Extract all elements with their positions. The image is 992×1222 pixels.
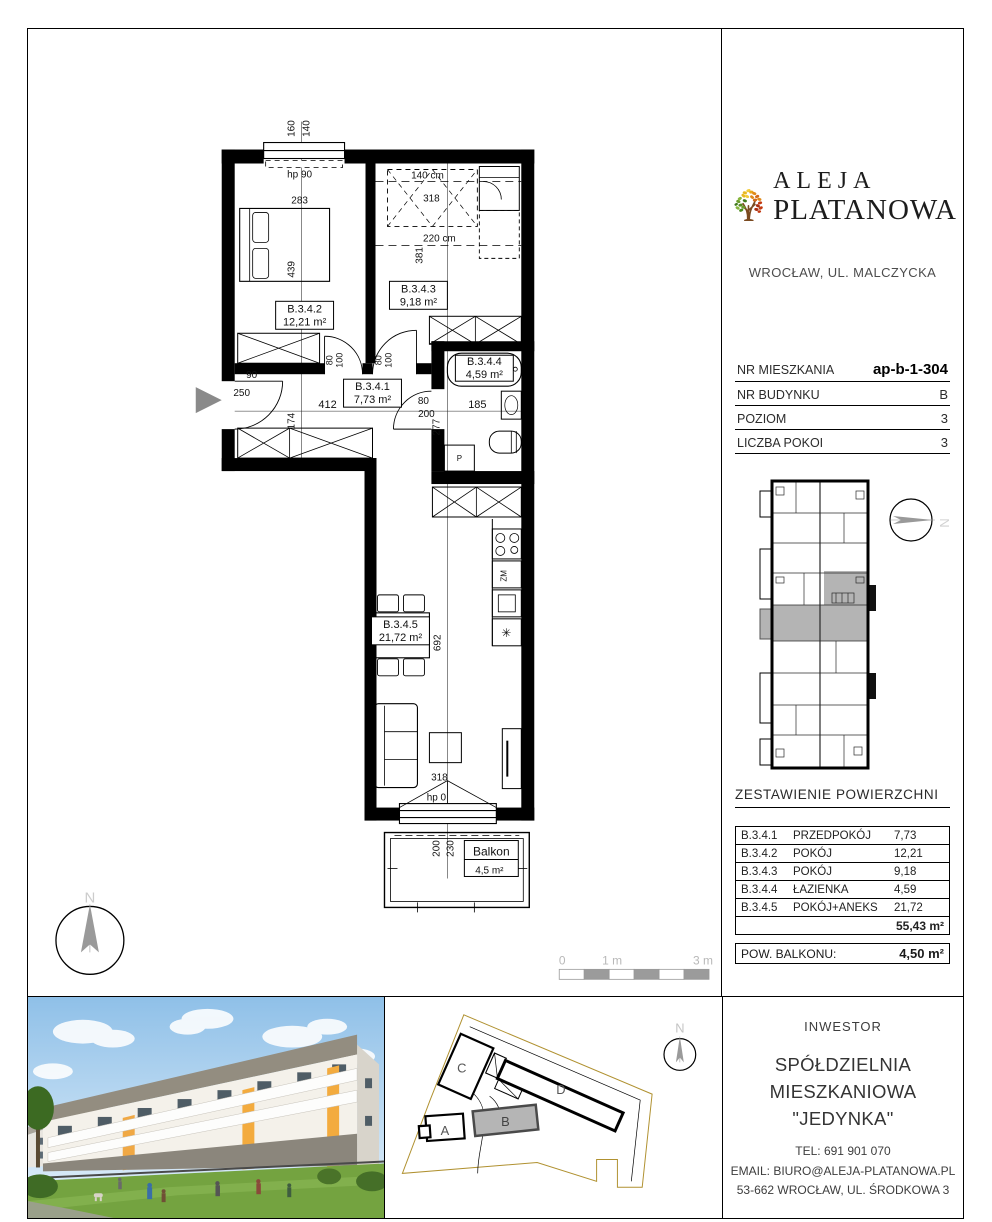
- detail-label: POZIOM: [737, 412, 786, 426]
- area-row: B.3.4.2 POKÓJ 12,21: [736, 845, 949, 863]
- investor-address: 53-662 WROCŁAW, UL. ŚRODKOWA 3: [723, 1181, 963, 1200]
- room-area: 9,18: [894, 866, 944, 878]
- balcony-area-box: POW. BALKONU: 4,50 m²: [735, 943, 950, 964]
- svg-text:80: 80: [373, 355, 383, 365]
- svg-text:12,21 m²: 12,21 m²: [283, 316, 327, 328]
- area-row: B.3.4.4 ŁAZIENKA 4,59: [736, 881, 949, 899]
- svg-text:250: 250: [233, 388, 250, 399]
- wardrobe: [238, 428, 373, 458]
- svg-text:4,5 m²: 4,5 m²: [475, 865, 504, 876]
- svg-text:439: 439: [287, 261, 298, 278]
- svg-text:160: 160: [287, 120, 298, 137]
- svg-text:692: 692: [432, 634, 443, 651]
- svg-text:P: P: [457, 454, 462, 463]
- detail-value: 3: [941, 411, 948, 426]
- hall-furniture: [238, 428, 373, 458]
- dishwasher: [492, 590, 521, 617]
- floorplan-sheet: { "plan": { "labels": [ {"t":"160","x":2…: [0, 0, 992, 1222]
- investor-name-line2: MIESZKANIOWA "JEDYNKA": [723, 1079, 963, 1133]
- svg-text:N: N: [85, 889, 96, 906]
- detail-row-level: POZIOM 3: [735, 406, 950, 430]
- total-area-row: 55,43 m²: [736, 917, 949, 935]
- svg-text:✳: ✳: [501, 626, 511, 640]
- svg-text:B.3.4.3: B.3.4.3: [401, 283, 436, 295]
- room-area: 12,21: [894, 848, 944, 860]
- svg-text:B.3.4.4: B.3.4.4: [467, 356, 502, 368]
- investor-info: INWESTOR SPÓŁDZIELNIA MIESZKANIOWA "JEDY…: [722, 997, 963, 1218]
- svg-text:174: 174: [287, 412, 298, 429]
- balcony-area-label: POW. BALKONU:: [741, 947, 836, 961]
- svg-text:9,18 m²: 9,18 m²: [400, 296, 438, 308]
- investor-phone: TEL: 691 901 070: [723, 1142, 963, 1161]
- minimap-compass: N: [883, 487, 953, 553]
- tv-cabinet: [502, 729, 521, 789]
- chair: [377, 595, 398, 612]
- investor-contact: TEL: 691 901 070 EMAIL: BIURO@ALEJA-PLAT…: [723, 1142, 963, 1200]
- chair: [377, 659, 398, 676]
- footer-strip: CABDN INWESTOR SPÓŁDZIELNIA MIESZKANIOWA…: [28, 996, 963, 1218]
- total-area-value: 55,43 m²: [896, 919, 944, 933]
- svg-text:N: N: [675, 1021, 684, 1036]
- svg-text:1 m: 1 m: [602, 953, 622, 967]
- svg-text:B: B: [501, 1114, 510, 1129]
- room-name: PRZEDPOKÓJ: [793, 830, 894, 842]
- building-render-illustration: [28, 997, 384, 1218]
- balcony-door: [399, 804, 496, 824]
- entrance-arrow: [196, 387, 222, 413]
- closet: [479, 166, 519, 210]
- svg-text:21,72 m²: 21,72 m²: [379, 632, 423, 644]
- detail-label: LICZBA POKOI: [737, 436, 823, 450]
- area-row: B.3.4.3 POKÓJ 9,18: [736, 863, 949, 881]
- plot-boundary: [402, 1015, 652, 1187]
- site-plan-drawing: CABDN: [385, 997, 722, 1218]
- room-code: B.3.4.1: [741, 830, 793, 842]
- room-area: 21,72: [894, 902, 944, 914]
- svg-text:185: 185: [468, 399, 486, 411]
- svg-text:B.3.4.5: B.3.4.5: [383, 619, 418, 631]
- svg-text:80: 80: [418, 396, 430, 407]
- investor-email: EMAIL: BIURO@ALEJA-PLATANOWA.PL: [723, 1162, 963, 1181]
- svg-text:220 cm: 220 cm: [423, 233, 456, 244]
- svg-text:4,59 m²: 4,59 m²: [466, 369, 504, 381]
- room-area: 4,59: [894, 884, 944, 896]
- svg-text:hp 90: hp 90: [287, 169, 312, 180]
- tree-logo-icon: [734, 155, 765, 253]
- svg-text:412: 412: [318, 399, 336, 411]
- room-code: B.3.4.5: [741, 902, 793, 914]
- svg-text:200: 200: [431, 840, 442, 857]
- svg-text:283: 283: [291, 195, 308, 206]
- svg-text:hp 0: hp 0: [427, 793, 447, 804]
- floorplan-area: 160140hp 90283439B.3.4.212,21 m²140 cm31…: [28, 29, 722, 996]
- room-code: B.3.4.2: [741, 848, 793, 860]
- svg-text:D: D: [556, 1082, 565, 1097]
- svg-text:C: C: [457, 1060, 466, 1075]
- svg-text:80: 80: [325, 355, 335, 365]
- project-location: WROCŁAW, UL. MALCZYCKA: [722, 265, 963, 280]
- detail-label: NR MIESZKANIA: [737, 363, 834, 377]
- chair: [403, 659, 424, 676]
- svg-text:277: 277: [431, 418, 442, 435]
- svg-text:100: 100: [383, 353, 393, 368]
- room-code: B.3.4.4: [741, 884, 793, 896]
- bedroom-furniture: [238, 208, 330, 363]
- areas-table-title: ZESTAWIENIE POWIERZCHNI: [735, 787, 950, 808]
- detail-row-room-count: LICZBA POKOI 3: [735, 430, 950, 454]
- svg-text:B.3.4.2: B.3.4.2: [287, 303, 322, 315]
- bed: [240, 208, 330, 281]
- svg-text:200: 200: [418, 409, 435, 420]
- svg-text:ZM: ZM: [499, 570, 508, 582]
- brand-name-line1: ALEJA: [773, 169, 957, 195]
- investor-name-line1: SPÓŁDZIELNIA: [723, 1052, 963, 1079]
- scale-bar: [559, 969, 709, 979]
- building-render-photo: [28, 997, 385, 1218]
- brand-name: ALEJA PLATANOWA: [773, 169, 957, 226]
- siteplan-compass: [664, 1037, 696, 1071]
- svg-text:318: 318: [423, 193, 440, 204]
- room-area: 7,73: [894, 830, 944, 842]
- plan-labels: 160140hp 90283439B.3.4.212,21 m²140 cm31…: [85, 120, 714, 968]
- brand-logo: ALEJA PLATANOWA: [734, 155, 957, 253]
- detail-value: ap-b-1-304: [873, 361, 948, 378]
- svg-text:B.3.4.1: B.3.4.1: [355, 381, 390, 393]
- svg-text:7,73 m²: 7,73 m²: [354, 394, 392, 406]
- investor-heading: INWESTOR: [723, 1019, 963, 1034]
- svg-text:230: 230: [445, 840, 456, 857]
- building-minimap: [746, 477, 896, 772]
- cabinet: [432, 487, 521, 517]
- detail-row-building-number: NR BUDYNKU B: [735, 382, 950, 406]
- svg-text:381: 381: [414, 247, 425, 264]
- balcony-area-value: 4,50 m²: [899, 946, 944, 961]
- room-name: POKÓJ: [793, 848, 894, 860]
- svg-text:90: 90: [246, 370, 258, 381]
- apartment-floorplan-drawing: 160140hp 90283439B.3.4.212,21 m²140 cm31…: [28, 29, 721, 996]
- svg-text:318: 318: [431, 773, 448, 784]
- svg-text:Balkon: Balkon: [473, 845, 510, 859]
- building-floor-overview: N: [746, 477, 957, 777]
- room-name: POKÓJ: [793, 866, 894, 878]
- area-row: B.3.4.1 PRZEDPOKÓJ 7,73: [736, 827, 949, 845]
- detail-label: NR BUDYNKU: [737, 388, 820, 402]
- svg-text:100: 100: [335, 353, 345, 368]
- sofa: [375, 704, 418, 788]
- brand-name-line2: PLATANOWA: [773, 195, 957, 226]
- room3-furniture: [375, 166, 521, 344]
- svg-text:A: A: [441, 1123, 450, 1138]
- room-name: ŁAZIENKA: [793, 884, 894, 896]
- detail-value: B: [939, 387, 948, 402]
- stove: [492, 529, 521, 559]
- coffee-table: [429, 733, 461, 763]
- svg-text:0: 0: [559, 953, 566, 967]
- area-row: B.3.4.5 POKÓJ+ANEKS 21,72: [736, 899, 949, 917]
- apartment-details: NR MIESZKANIA ap-b-1-304 NR BUDYNKU B PO…: [735, 356, 950, 454]
- svg-text:140: 140: [302, 120, 313, 137]
- svg-text:N: N: [937, 518, 952, 527]
- svg-text:3 m: 3 m: [693, 953, 713, 967]
- sidebar: ALEJA PLATANOWA WROCŁAW, UL. MALCZYCKA N…: [722, 29, 963, 996]
- site-plan: CABDN: [385, 997, 722, 1218]
- north-compass: [56, 904, 124, 974]
- detail-value: 3: [941, 435, 948, 450]
- chair: [403, 595, 424, 612]
- dimension-lines: [235, 122, 522, 879]
- svg-text:140 cm: 140 cm: [411, 170, 444, 181]
- minimap-compass-labels: N: [937, 518, 952, 527]
- room-code: B.3.4.3: [741, 866, 793, 878]
- room-name: POKÓJ+ANEKS: [793, 902, 894, 914]
- areas-table: B.3.4.1 PRZEDPOKÓJ 7,73 B.3.4.2 POKÓJ 12…: [735, 826, 950, 935]
- detail-row-apartment-number: NR MIESZKANIA ap-b-1-304: [735, 356, 950, 382]
- page-frame: 160140hp 90283439B.3.4.212,21 m²140 cm31…: [27, 28, 964, 1219]
